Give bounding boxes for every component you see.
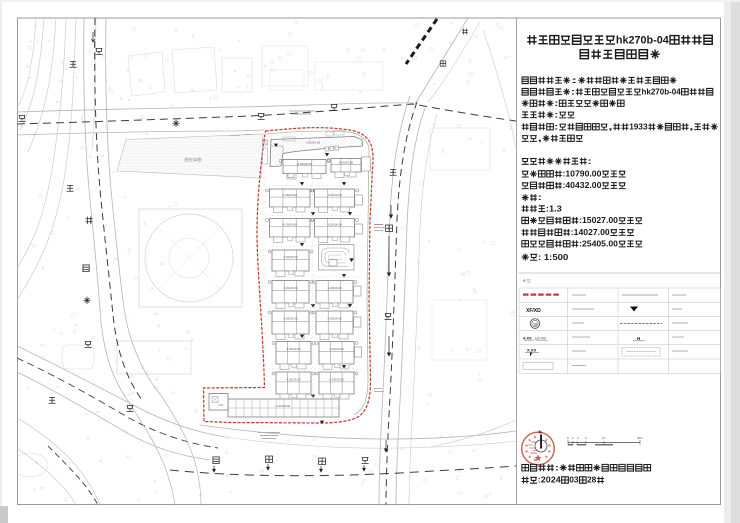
svg-text::1.3: :1.3 xyxy=(546,203,562,213)
svg-text:4.20/24.00: 4.20/24.00 xyxy=(283,317,298,321)
svg-text:03: 03 xyxy=(569,475,579,485)
svg-text:4.20/24.00: 4.20/24.00 xyxy=(327,317,342,321)
svg-text:(±0.00): (±0.00) xyxy=(535,337,546,341)
svg-text:hk270b-04: hk270b-04 xyxy=(642,86,682,96)
svg-text:hk270b-04: hk270b-04 xyxy=(616,34,670,46)
svg-text:28: 28 xyxy=(587,475,597,485)
svg-text:4.30/24.00: 4.30/24.00 xyxy=(306,141,321,145)
svg-text:XF/XD: XF/XD xyxy=(526,308,541,314)
svg-text:H: H xyxy=(637,336,640,341)
svg-text::: : xyxy=(538,192,542,202)
svg-text:1: 1 xyxy=(572,436,574,440)
svg-text::: : xyxy=(571,86,575,96)
svg-text:4.20/24.00: 4.20/24.00 xyxy=(283,223,298,227)
svg-text::10790.00: :10790.00 xyxy=(563,169,602,179)
svg-text:4.30/19.00: 4.30/19.00 xyxy=(276,404,291,408)
svg-text::: : xyxy=(554,109,558,119)
svg-text:4.20/24.00: 4.20/24.00 xyxy=(327,223,342,227)
svg-text:: 1:500: : 1:500 xyxy=(538,252,569,262)
svg-text:4.20/23.00: 4.20/23.00 xyxy=(329,347,344,351)
svg-text::: : xyxy=(571,75,578,85)
svg-text:4.20/24.00: 4.20/24.00 xyxy=(283,286,298,290)
svg-text:4.20/23.00: 4.20/23.00 xyxy=(339,161,354,165)
svg-text::: : xyxy=(587,156,591,166)
svg-text:4.20/24.00: 4.20/24.00 xyxy=(327,193,342,197)
svg-text::2024: :2024 xyxy=(538,475,561,485)
svg-text::14027.00: :14027.00 xyxy=(571,227,610,237)
svg-text:,: , xyxy=(689,121,693,131)
svg-text:4.20/24.00: 4.20/24.00 xyxy=(283,193,298,197)
svg-text:4.20/23.00: 4.20/23.00 xyxy=(286,347,301,351)
svg-text:4.20/23.00: 4.20/23.00 xyxy=(297,162,312,166)
svg-text::40432.00: :40432.00 xyxy=(563,180,602,190)
svg-text:,: , xyxy=(608,121,612,131)
svg-text:4.20/23.00: 4.20/23.00 xyxy=(286,377,301,381)
svg-text:1933: 1933 xyxy=(629,121,648,131)
svg-text:5: 5 xyxy=(585,436,587,440)
svg-text:4.20/24.00: 4.20/24.00 xyxy=(327,286,342,290)
svg-text:2: 2 xyxy=(577,436,579,440)
svg-text:0: 0 xyxy=(567,436,569,440)
svg-text::25405.00: :25405.00 xyxy=(579,238,618,248)
svg-text::: : xyxy=(554,121,558,131)
svg-text:4.XX: 4.XX xyxy=(523,336,532,341)
svg-text:,: , xyxy=(538,133,542,143)
svg-text:40m: 40m xyxy=(637,436,643,440)
svg-text:18: 18 xyxy=(533,322,537,326)
svg-text:X.XX: X.XX xyxy=(527,348,536,353)
svg-text:4.20/23.00: 4.20/23.00 xyxy=(329,377,344,381)
svg-text::: : xyxy=(554,98,558,108)
svg-text:4.20/23.00: 4.20/23.00 xyxy=(283,255,298,259)
svg-text:10: 10 xyxy=(602,436,606,440)
svg-text::: : xyxy=(555,462,559,472)
svg-text:4.30: 4.30 xyxy=(218,403,224,407)
svg-text:N: N xyxy=(539,430,542,435)
svg-text::15027.00: :15027.00 xyxy=(579,215,618,225)
